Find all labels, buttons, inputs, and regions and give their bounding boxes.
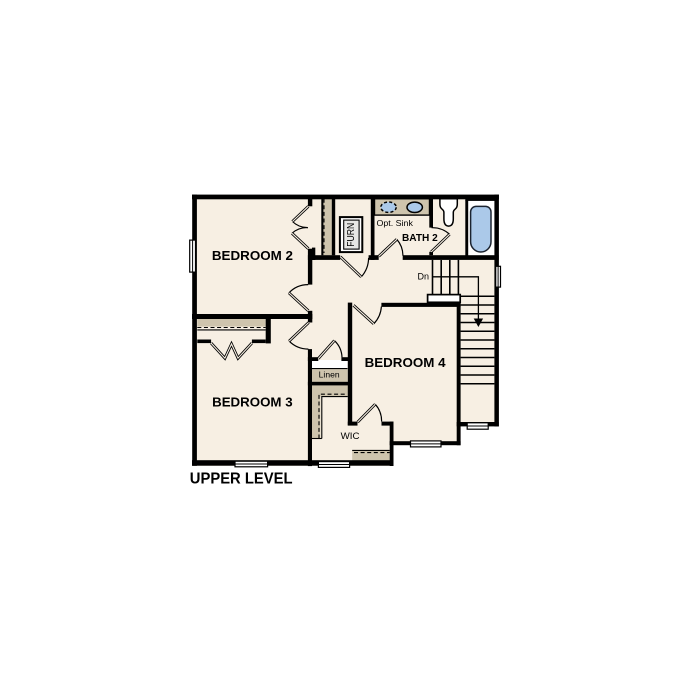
svg-text:BEDROOM 3: BEDROOM 3	[212, 396, 293, 410]
svg-text:Opt. Sink: Opt. Sink	[377, 218, 414, 228]
svg-text:WIC: WIC	[341, 431, 360, 441]
svg-text:BATH 2: BATH 2	[402, 233, 438, 244]
svg-text:BEDROOM 2: BEDROOM 2	[212, 249, 293, 263]
svg-text:Linen: Linen	[319, 370, 340, 380]
svg-text:BEDROOM 4: BEDROOM 4	[365, 356, 446, 370]
svg-text:Dn: Dn	[418, 271, 430, 281]
svg-text:UPPER LEVEL: UPPER LEVEL	[190, 471, 293, 488]
svg-text:FURN: FURN	[346, 223, 357, 247]
